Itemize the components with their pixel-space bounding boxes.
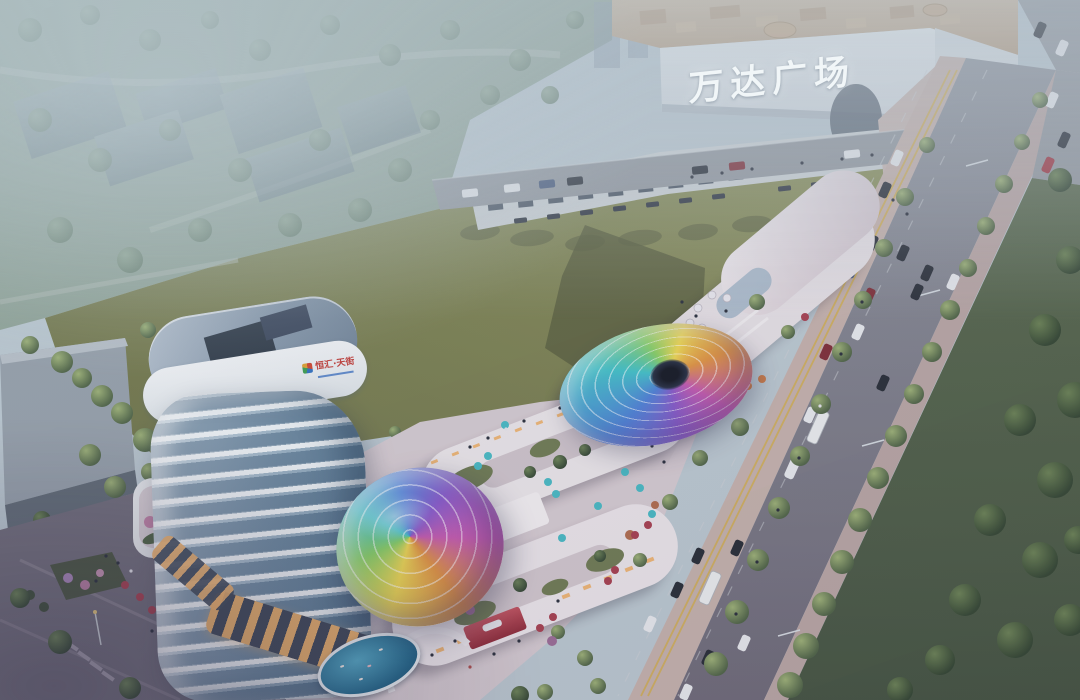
tree <box>79 444 101 466</box>
tree <box>51 351 73 373</box>
tree <box>159 119 181 141</box>
swimmer <box>367 664 371 667</box>
umbrella <box>536 624 544 632</box>
swimmer <box>379 648 383 651</box>
tree <box>47 217 73 243</box>
tree <box>1004 404 1036 436</box>
tree <box>997 622 1033 658</box>
umbrella <box>694 304 702 312</box>
tree <box>80 5 100 25</box>
tree <box>511 686 529 700</box>
tree <box>420 110 440 130</box>
tree <box>348 198 372 222</box>
tree <box>440 20 460 40</box>
tree <box>867 467 889 489</box>
tree <box>1022 542 1058 578</box>
tree <box>896 188 914 206</box>
tree <box>974 504 1006 536</box>
lamp-head <box>93 610 97 614</box>
tree <box>875 239 893 257</box>
umbrella <box>544 478 552 486</box>
umbrella <box>708 291 716 299</box>
umbrella <box>558 534 566 542</box>
umbrella <box>552 490 560 498</box>
tree <box>566 11 584 29</box>
tree <box>547 636 557 646</box>
umbrella <box>758 375 766 383</box>
corner-road <box>1018 0 1080 73</box>
bush <box>96 569 104 577</box>
tree <box>781 325 795 339</box>
tree <box>278 213 302 237</box>
tree <box>633 553 647 567</box>
car <box>504 183 521 193</box>
tree <box>919 137 935 153</box>
tree <box>309 129 331 151</box>
tree <box>594 550 606 562</box>
tree <box>21 336 39 354</box>
tree <box>959 259 977 277</box>
tree <box>995 175 1013 193</box>
tree <box>749 294 765 310</box>
tree <box>1048 168 1072 192</box>
bush <box>63 573 73 583</box>
umbrella <box>474 462 482 470</box>
bush <box>80 580 90 590</box>
tree <box>793 633 819 659</box>
tree <box>117 247 143 273</box>
tree <box>188 218 212 242</box>
tree <box>731 418 749 436</box>
tree <box>509 49 531 71</box>
umbrella <box>644 521 652 529</box>
tree <box>977 217 995 235</box>
tree <box>388 158 412 182</box>
tree <box>704 652 728 676</box>
tree <box>848 508 872 532</box>
tree <box>940 300 960 320</box>
tree <box>577 650 593 666</box>
tree <box>541 86 559 104</box>
tree <box>104 476 126 498</box>
tree <box>854 291 872 309</box>
umbrella <box>723 294 731 302</box>
tree <box>830 550 854 574</box>
tree <box>72 368 92 388</box>
tree <box>811 394 831 414</box>
funnel-oculus <box>647 355 693 393</box>
tree <box>91 385 113 407</box>
tree <box>48 630 72 654</box>
car <box>692 165 709 175</box>
tree <box>201 11 219 29</box>
tree <box>379 44 401 66</box>
tree <box>1014 134 1030 150</box>
car <box>567 176 584 186</box>
umbrella <box>631 531 639 539</box>
tree <box>1037 462 1073 498</box>
tree <box>1032 92 1048 108</box>
tree <box>922 342 942 362</box>
tree <box>537 684 553 700</box>
brand-logo-text: 恒汇·天街 <box>314 357 354 371</box>
umbrella <box>621 468 629 476</box>
car <box>643 615 658 633</box>
office-tower: 恒汇·天街 <box>140 300 380 700</box>
umbrella <box>549 613 557 621</box>
dome-highlight <box>352 483 438 549</box>
tree <box>885 425 907 447</box>
tree <box>777 672 803 698</box>
swimmer <box>340 665 344 668</box>
tree <box>925 645 955 675</box>
umbrella <box>604 577 612 585</box>
umbrella <box>801 313 809 321</box>
tree <box>949 584 981 616</box>
tree <box>790 446 810 466</box>
bush <box>39 602 49 612</box>
tree <box>88 148 112 172</box>
tree <box>579 444 591 456</box>
brand-logo-icon <box>301 363 312 374</box>
tree <box>139 29 161 51</box>
tree <box>904 384 924 404</box>
tree <box>747 549 769 571</box>
rendering-canvas: 恒汇·天街 万达广场 <box>0 0 1080 700</box>
umbrella <box>594 502 602 510</box>
tree <box>590 678 606 694</box>
tree <box>832 342 852 362</box>
tree <box>662 494 678 510</box>
tree <box>249 39 271 61</box>
umbrella <box>648 510 656 518</box>
umbrella <box>611 566 619 574</box>
tree <box>513 578 527 592</box>
tree <box>320 15 340 35</box>
tree <box>18 18 42 42</box>
tree <box>768 497 790 519</box>
car <box>844 149 861 159</box>
tree <box>28 108 52 132</box>
umbrella <box>636 484 644 492</box>
tree <box>1029 314 1061 346</box>
umbrella <box>121 581 129 589</box>
tree <box>111 402 133 424</box>
car <box>462 188 479 198</box>
tree <box>725 600 749 624</box>
mall-dome <box>764 22 796 38</box>
car <box>539 179 556 189</box>
tree <box>119 677 141 699</box>
tree <box>553 455 567 469</box>
tree <box>10 588 30 608</box>
swimmer <box>359 678 363 681</box>
car <box>729 161 746 171</box>
tree <box>228 158 252 182</box>
tree <box>692 450 708 466</box>
tree <box>524 466 536 478</box>
mall-dome <box>923 4 947 16</box>
brand-logo-underline <box>318 370 354 378</box>
tree <box>812 592 836 616</box>
rooftop-unit <box>260 304 313 340</box>
umbrella <box>484 452 492 460</box>
tree <box>480 85 500 105</box>
tree <box>651 501 659 509</box>
